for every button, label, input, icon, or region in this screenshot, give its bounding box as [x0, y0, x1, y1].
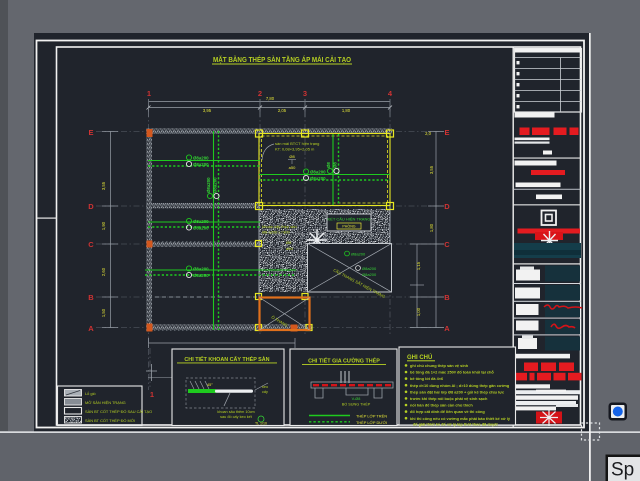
svg-text:a50: a50	[289, 165, 296, 170]
svg-text:Ø8a200: Ø8a200	[213, 177, 218, 193]
svg-text:khi thi công nếu có vướng mắc: khi thi công nếu có vướng mắc phải báo t…	[410, 416, 511, 421]
svg-text:2,05: 2,05	[278, 108, 287, 113]
svg-text:B: B	[88, 293, 94, 302]
svg-text:TL 1/10: TL 1/10	[255, 422, 267, 426]
svg-text:THÉP LỚP TRÊN: THÉP LỚP TRÊN	[356, 414, 387, 419]
svg-text:Ø8: Ø8	[289, 154, 295, 159]
svg-text:KT: 0,08×3,95×2,05 m: KT: 0,08×3,95×2,05 m	[275, 147, 315, 152]
svg-text:Ø8a200: Ø8a200	[193, 156, 209, 161]
svg-text:3,95: 3,95	[203, 108, 212, 113]
svg-text:E: E	[88, 128, 93, 137]
svg-text:khoan sâu thêm 10cm: khoan sâu thêm 10cm	[217, 410, 254, 414]
svg-text:2: 2	[258, 89, 262, 98]
svg-text:Ø8a200: Ø8a200	[193, 162, 209, 167]
svg-text:45°: 45°	[207, 383, 213, 387]
svg-text:1,50: 1,50	[101, 308, 106, 317]
svg-text:đổ hợp cất dính để liên quan v: đổ hợp cất dính để liên quan về thi công	[410, 409, 485, 414]
svg-text:CHI TIẾT KHOAN CẤY THÉP SÀN: CHI TIẾT KHOAN CẤY THÉP SÀN	[184, 355, 269, 363]
svg-text:MẶT BẰNG THÉP SÀN TẦNG ÁP MÁI: MẶT BẰNG THÉP SÀN TẦNG ÁP MÁI CẢI TẠO	[213, 54, 351, 64]
svg-text:3,55: 3,55	[101, 181, 106, 190]
svg-text:2,0: 2,0	[425, 131, 431, 136]
svg-text:D: D	[444, 202, 450, 211]
svg-text:C: C	[88, 240, 94, 249]
svg-text:7,80: 7,80	[266, 96, 275, 101]
svg-text:Ø8a200: Ø8a200	[351, 252, 366, 257]
svg-text:Ø8: Ø8	[326, 162, 331, 168]
svg-text:Sp: Sp	[611, 460, 634, 481]
svg-text:GHI CHÚ: GHI CHÚ	[407, 354, 432, 361]
svg-text:Ø8a200: Ø8a200	[206, 177, 211, 193]
svg-text:Lỗ gió: Lỗ gió	[85, 391, 96, 396]
svg-text:3,55: 3,55	[429, 165, 434, 174]
svg-text:Ø8a200: Ø8a200	[362, 266, 377, 271]
svg-text:Ø8a200: Ø8a200	[193, 226, 209, 231]
svg-text:SÀN BT CỐT THÉP ĐỔ SAU CẢI TẠO: SÀN BT CỐT THÉP ĐỔ SAU CẢI TẠO	[85, 409, 152, 414]
svg-text:Ø8: Ø8	[286, 240, 292, 245]
svg-text:2,60: 2,60	[101, 267, 106, 276]
svg-text:Ø8a200: Ø8a200	[310, 176, 326, 181]
svg-text:1,15: 1,15	[416, 261, 421, 270]
svg-text:thép sàn đặt hai lớp Ø8 a200 +: thép sàn đặt hai lớp Ø8 a200 + gối kê th…	[410, 389, 505, 394]
svg-text:1,80: 1,80	[342, 108, 351, 113]
svg-text:thép d<10 dùng nhóm AI ; d>10: thép d<10 dùng nhóm AI ; d>10 dùng thép …	[410, 383, 510, 388]
svg-text:1: 1	[147, 89, 151, 98]
svg-text:Ø8a200: Ø8a200	[362, 272, 377, 277]
svg-text:E: E	[444, 128, 449, 137]
svg-text:D: D	[88, 202, 94, 211]
svg-text:1: 1	[150, 390, 154, 399]
svg-text:THÉP LỚP DƯỚI: THÉP LỚP DƯỚI	[356, 420, 387, 425]
svg-text:PHÒNG: PHÒNG	[342, 224, 355, 229]
svg-text:1,90: 1,90	[101, 221, 106, 230]
svg-text:bê tông đá 1×2 mác 250# đổ toà: bê tông đá 1×2 mác 250# đổ toàn khối tại…	[410, 370, 494, 375]
svg-text:B: B	[444, 293, 450, 302]
svg-text:1,00: 1,00	[416, 307, 421, 316]
svg-text:A: A	[444, 324, 450, 333]
svg-text:SÀN BT CỐT THÉP ĐỔ MỚI: SÀN BT CỐT THÉP ĐỔ MỚI	[85, 418, 135, 423]
svg-text:CHI TIẾT GIA CƯỜNG THÉP: CHI TIẾT GIA CƯỜNG THÉP	[308, 357, 380, 365]
svg-text:bê tông lót đá 4×6: bê tông lót đá 4×6	[410, 376, 444, 381]
svg-text:cấy: cấy	[262, 390, 268, 394]
svg-text:sau đó cấy keo kết: sau đó cấy keo kết	[220, 415, 253, 419]
svg-text:MỞ SÀN HIỆN TRẠNG: MỞ SÀN HIỆN TRẠNG	[85, 400, 126, 405]
svg-text:V-Ø8: V-Ø8	[352, 397, 361, 401]
svg-text:C: C	[444, 240, 450, 249]
svg-text:KẾT CẤU HIỆN TRẠNG: KẾT CẤU HIỆN TRẠNG	[328, 217, 371, 222]
svg-text:Ø8 a200 L=300: Ø8 a200 L=300	[262, 230, 290, 235]
svg-text:để giải thiết kế để xử lý kịp: để giải thiết kế để xử lý kịp thời theo …	[413, 421, 498, 426]
svg-text:Ø8a200: Ø8a200	[193, 273, 209, 278]
svg-text:nối hàn để thép sàn cần chú th: nối hàn để thép sàn cần chú thích	[410, 403, 473, 408]
svg-text:ghi chú chung thép sàn vệ sinh: ghi chú chung thép sàn vệ sinh	[410, 363, 469, 368]
svg-text:trước khi thép nối buộc phải v: trước khi thép nối buộc phải vệ sinh sạc…	[410, 396, 488, 401]
svg-text:3: 3	[303, 89, 307, 98]
svg-text:khoan cấy thép sàn: khoan cấy thép sàn	[262, 224, 297, 229]
svg-text:Ø8a200: Ø8a200	[193, 219, 209, 224]
svg-text:a50: a50	[286, 246, 293, 251]
svg-text:1,80: 1,80	[429, 223, 434, 232]
svg-text:Ø8: Ø8	[333, 162, 338, 168]
svg-text:Ø8a200: Ø8a200	[193, 267, 209, 272]
svg-text:BỔ SUNG THÉP: BỔ SUNG THÉP	[342, 402, 371, 407]
svg-text:sàn mái BTCT hiện trạng: sàn mái BTCT hiện trạng	[275, 141, 319, 146]
svg-text:A: A	[88, 324, 94, 333]
svg-text:Ø8a200: Ø8a200	[310, 170, 326, 175]
